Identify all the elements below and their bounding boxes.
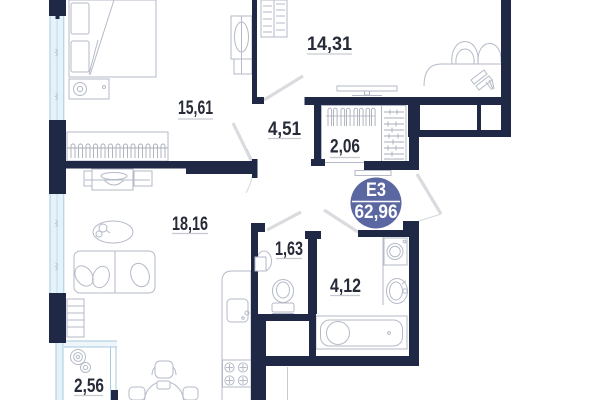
svg-text:2,06: 2,06 (330, 137, 360, 158)
svg-text:14,31: 14,31 (307, 34, 352, 55)
svg-text:18,16: 18,16 (172, 214, 208, 235)
svg-text:2,56: 2,56 (74, 376, 104, 397)
svg-text:4,51: 4,51 (268, 119, 301, 140)
svg-text:62,96: 62,96 (355, 202, 398, 223)
svg-text:1,63: 1,63 (275, 239, 303, 260)
svg-text:15,61: 15,61 (178, 98, 213, 119)
svg-text:E3: E3 (366, 180, 386, 201)
svg-text:4,12: 4,12 (330, 276, 361, 297)
